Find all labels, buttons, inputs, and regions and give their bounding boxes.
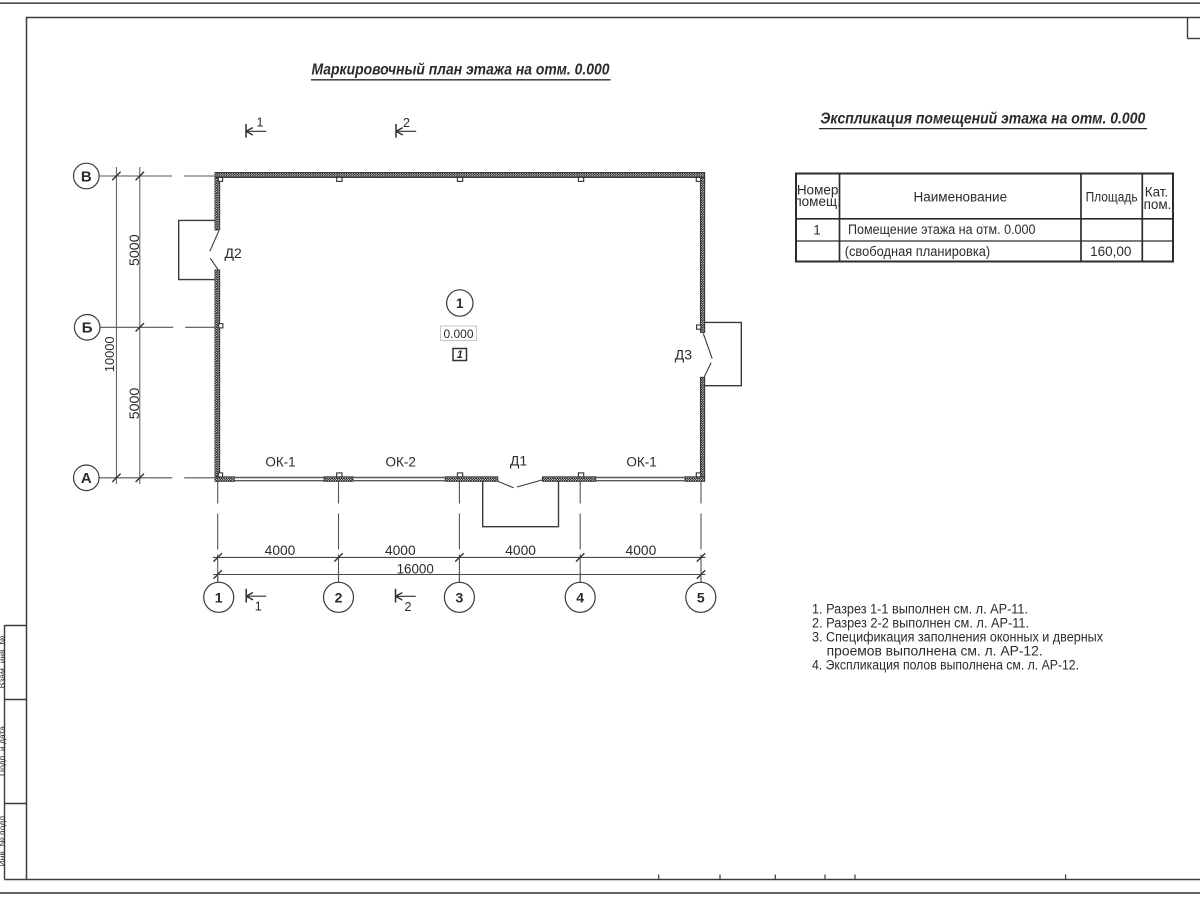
- svg-text:ОК-1: ОК-1: [265, 454, 295, 469]
- svg-text:ОК-2: ОК-2: [386, 454, 416, 469]
- svg-text:1: 1: [813, 222, 821, 237]
- svg-text:Экспликация помещений этажа на: Экспликация помещений этажа на отм. 0.00…: [820, 111, 1145, 128]
- svg-text:3. Спецификация заполнения око: 3. Спецификация заполнения оконных и две…: [812, 629, 1103, 644]
- svg-text:В: В: [81, 168, 92, 185]
- svg-text:4: 4: [576, 589, 584, 605]
- svg-text:Б: Б: [82, 320, 93, 337]
- svg-text:Маркировочный план этажа на от: Маркировочный план этажа на отм. 0.000: [312, 62, 610, 79]
- svg-text:1: 1: [257, 116, 264, 130]
- svg-text:Д2: Д2: [225, 245, 242, 261]
- svg-text:1: 1: [456, 296, 464, 311]
- svg-text:Помещение этажа на отм. 0.000: Помещение этажа на отм. 0.000: [848, 222, 1036, 237]
- svg-text:5000: 5000: [127, 388, 143, 420]
- svg-text:2: 2: [335, 589, 343, 605]
- svg-text:160,00: 160,00: [1090, 244, 1131, 259]
- svg-text:10000: 10000: [102, 337, 117, 373]
- svg-text:ОК-1: ОК-1: [626, 454, 656, 469]
- svg-text:проемов выполнена см. л. АР-12: проемов выполнена см. л. АР-12.: [827, 644, 1043, 659]
- svg-text:1: 1: [255, 600, 262, 614]
- svg-text:4000: 4000: [505, 543, 536, 558]
- svg-text:Инв. № подл.: Инв. № подл.: [0, 814, 7, 867]
- svg-text:2. Разрез 2-2 выполнен см. л.: 2. Разрез 2-2 выполнен см. л. АР-11.: [812, 615, 1029, 630]
- svg-text:4000: 4000: [626, 543, 657, 558]
- svg-text:Площадь: Площадь: [1086, 189, 1138, 204]
- svg-text:3: 3: [456, 589, 464, 605]
- svg-text:пом.: пом.: [1144, 197, 1172, 212]
- svg-text:4000: 4000: [265, 543, 296, 558]
- svg-text:4000: 4000: [385, 543, 416, 558]
- svg-text:5: 5: [697, 589, 705, 605]
- svg-text:(свободная планировка): (свободная планировка): [845, 244, 991, 259]
- svg-text:2: 2: [405, 600, 412, 614]
- svg-text:Д1: Д1: [510, 452, 527, 468]
- svg-text:помещ.: помещ.: [794, 194, 840, 209]
- svg-text:Д3: Д3: [675, 347, 692, 363]
- svg-text:0.000: 0.000: [443, 327, 473, 341]
- svg-text:2: 2: [403, 116, 410, 130]
- svg-text:16000: 16000: [397, 561, 434, 576]
- svg-text:1: 1: [215, 589, 223, 605]
- svg-text:Взам. инв. №: Взам. инв. №: [0, 636, 7, 689]
- svg-text:Наименование: Наименование: [914, 190, 1008, 205]
- svg-text:Подп. и дата: Подп. и дата: [0, 726, 7, 776]
- svg-text:А: А: [81, 470, 92, 487]
- svg-text:4. Экспликация полов выполнена: 4. Экспликация полов выполнена см. л. АР…: [812, 658, 1079, 673]
- svg-text:5000: 5000: [127, 234, 143, 266]
- svg-text:1. Разрез 1-1 выполнен см. л.: 1. Разрез 1-1 выполнен см. л. АР-11.: [812, 601, 1028, 616]
- svg-text:1: 1: [457, 349, 463, 361]
